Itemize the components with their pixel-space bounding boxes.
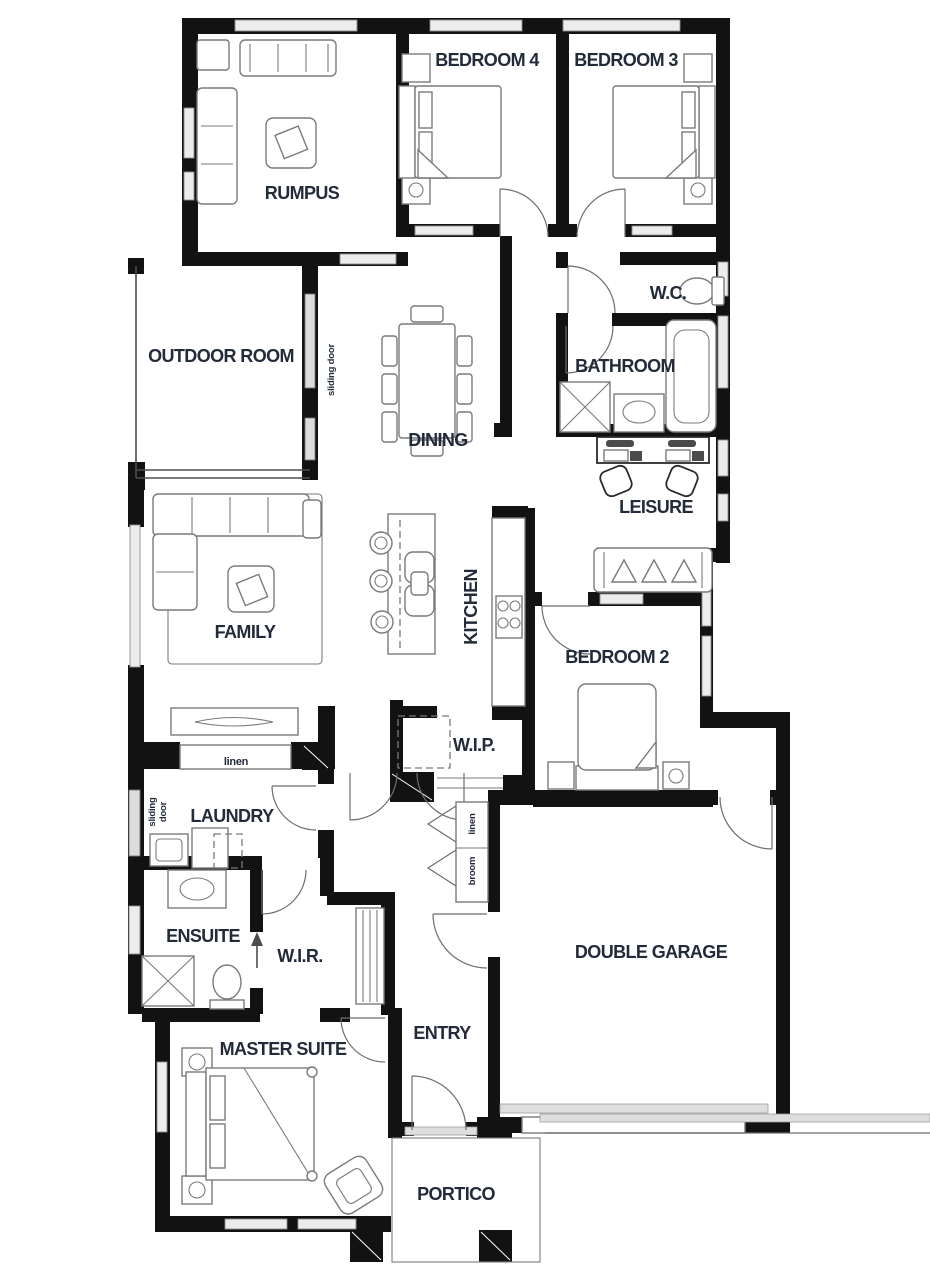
label-bedroom2: BEDROOM 2	[565, 647, 669, 667]
label-bedroom4: BEDROOM 4	[435, 50, 539, 70]
label-wip: W.I.P.	[453, 735, 495, 755]
vanity	[168, 870, 226, 908]
bifold-door	[428, 806, 456, 842]
bedside-table	[684, 176, 712, 204]
monitor	[668, 440, 696, 447]
room-wip	[398, 716, 450, 768]
room-bedroom2	[548, 684, 689, 790]
chair	[382, 336, 397, 366]
washer	[192, 828, 228, 868]
label-wc: W.C.	[650, 283, 687, 303]
label-double-garage: DOUBLE GARAGE	[575, 942, 728, 962]
label-master-suite: MASTER SUITE	[220, 1039, 347, 1059]
toilet-bowl	[213, 965, 241, 999]
garage-door-panel	[500, 1104, 768, 1113]
wardrobe	[402, 54, 430, 82]
chair	[382, 412, 397, 442]
monitor	[606, 440, 634, 447]
room-kitchen	[370, 514, 525, 706]
chair	[382, 374, 397, 404]
desk-chair	[598, 464, 634, 499]
label-broom: broom	[467, 857, 478, 886]
label-dining: DINING	[408, 430, 467, 450]
vanity	[614, 394, 664, 432]
label-door: door	[158, 801, 169, 822]
room-labels: RUMPUS BEDROOM 4 BEDROOM 3 OUTDOOR ROOM …	[148, 50, 728, 1204]
chair	[457, 374, 472, 404]
bedside-table	[402, 176, 430, 204]
driveway-edge	[540, 1114, 930, 1122]
floor-plan-page: RUMPUS BEDROOM 4 BEDROOM 3 OUTDOOR ROOM …	[0, 0, 930, 1280]
direction-arrow	[251, 932, 263, 968]
cabinet	[197, 40, 229, 70]
label-entry: ENTRY	[413, 1023, 471, 1043]
sofa-left	[197, 88, 237, 204]
pantry-shelves	[398, 716, 450, 768]
room-bedroom3	[613, 54, 715, 204]
desk-chair	[664, 464, 700, 499]
bed-headboard	[186, 1072, 206, 1176]
label-leisure: LEISURE	[619, 497, 693, 517]
room-bathroom	[560, 320, 716, 432]
armchair	[321, 1153, 386, 1217]
bedside-table	[548, 762, 574, 789]
sofa-top	[153, 494, 309, 536]
floor-plan-drawing: RUMPUS BEDROOM 4 BEDROOM 3 OUTDOOR ROOM …	[0, 0, 930, 1280]
label-sliding: sliding	[147, 797, 158, 827]
room-family	[153, 494, 322, 735]
room-master-suite	[182, 1048, 386, 1217]
tv-unit	[171, 708, 298, 735]
room-rumpus	[197, 40, 336, 204]
label-portico: PORTICO	[417, 1184, 495, 1204]
label-wir: W.I.R.	[277, 946, 322, 966]
label-family: FAMILY	[215, 622, 276, 642]
outdoor-room-outline	[136, 266, 310, 478]
label-sliding-door: sliding door	[326, 344, 337, 396]
sofa-arm	[303, 500, 321, 538]
bedside-table	[663, 762, 689, 789]
toilet-tank	[712, 277, 724, 305]
label-ensuite: ENSUITE	[166, 926, 240, 946]
sofa	[240, 40, 336, 76]
stool	[370, 570, 392, 592]
label-kitchen: KITCHEN	[461, 569, 481, 645]
chair	[457, 336, 472, 366]
label-outdoor-room: OUTDOOR ROOM	[148, 346, 294, 366]
dining-table	[399, 324, 455, 438]
room-wc	[680, 277, 724, 305]
room-bedroom4	[399, 54, 501, 204]
room-laundry	[150, 828, 242, 868]
bifold-door	[428, 850, 456, 886]
bed-headboard	[699, 86, 715, 178]
label-linen: linen	[224, 756, 249, 768]
wardrobe	[684, 54, 712, 82]
stool	[370, 532, 392, 554]
label-bedroom3: BEDROOM 3	[574, 50, 678, 70]
garage-door-and-driveway	[500, 1104, 930, 1133]
toilet-base	[210, 1000, 244, 1009]
label-bathroom: BATHROOM	[575, 356, 675, 376]
label-rumpus: RUMPUS	[265, 183, 340, 203]
label-laundry: LAUNDRY	[190, 806, 274, 826]
stool	[371, 611, 393, 633]
bed-headboard	[399, 86, 415, 178]
chair	[411, 306, 443, 322]
label-linen-vertical: linen	[467, 813, 478, 835]
hall-cupboards	[428, 802, 488, 902]
